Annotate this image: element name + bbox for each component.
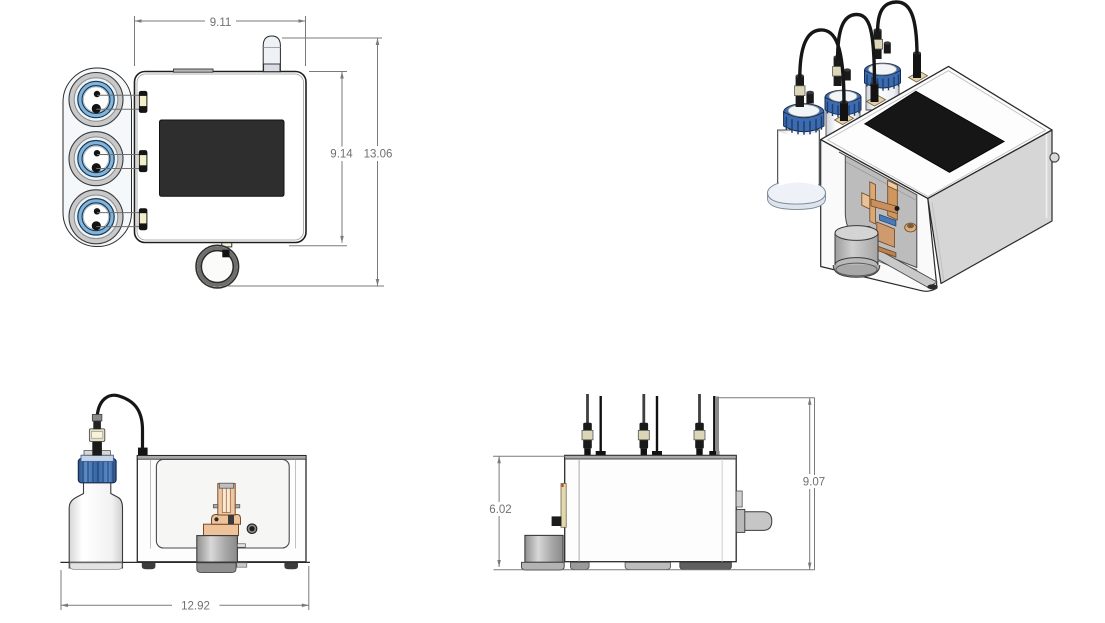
svg-text:9.07: 9.07 <box>803 477 825 489</box>
svg-text:13.06: 13.06 <box>364 149 393 161</box>
svg-text:9.11: 9.11 <box>210 17 232 29</box>
svg-text:12.92: 12.92 <box>181 601 210 613</box>
svg-text:9.14: 9.14 <box>330 149 353 161</box>
svg-text:6.02: 6.02 <box>489 504 511 516</box>
